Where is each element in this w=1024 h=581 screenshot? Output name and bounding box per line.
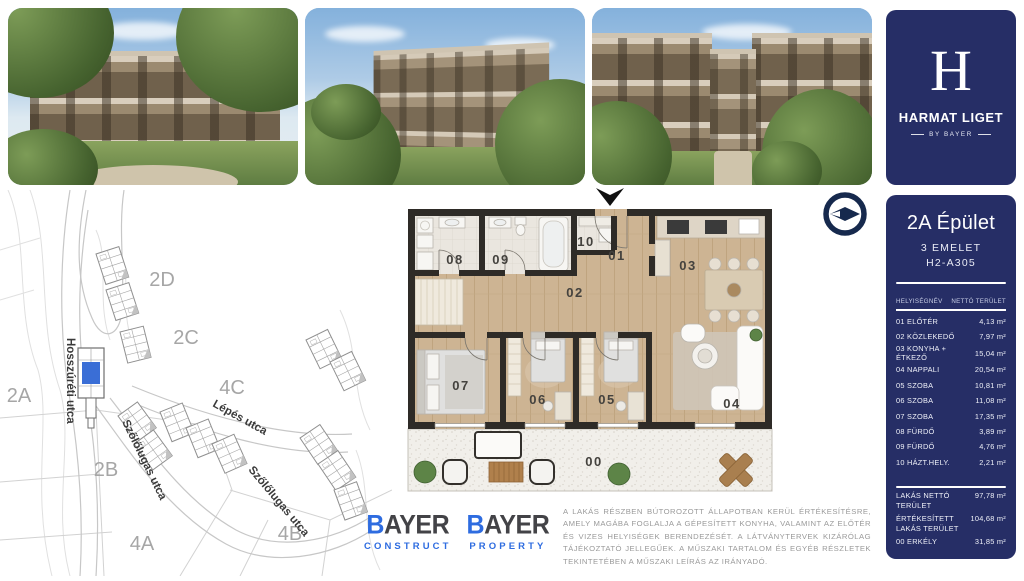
highlighted-building	[78, 348, 104, 428]
bayer-construct-word: BAYER	[364, 512, 452, 539]
byline-text: BY BAYER	[929, 131, 973, 138]
render-photo-corner	[305, 8, 585, 185]
table-row: 08 FÜRDŐ3,89 m²	[895, 424, 1007, 439]
room-name: 05 SZOBA	[896, 381, 933, 390]
logo-initial: B	[366, 510, 384, 540]
unit-building: 2A Épület	[895, 212, 1007, 235]
room-label-00: 00	[585, 454, 602, 469]
col-net-area: NETTÓ TERÜLET	[951, 298, 1006, 305]
bayer-construct-logo: BAYER CONSTRUCT	[364, 513, 452, 552]
summary-row: 00 ERKÉLY31,85 m²	[895, 534, 1007, 551]
col-room-name: HELYISÉGNÉV	[896, 298, 943, 305]
table-row: 04 NAPPALI20,54 m²	[895, 362, 1007, 377]
roads	[62, 190, 372, 576]
summary-area: 31,85 m²	[975, 537, 1006, 546]
brand-byline: BY BAYER	[886, 131, 1016, 138]
walkway	[714, 151, 752, 185]
site-map: 2D 2C 4C 2A 2B 4A 4B Hosszúréti utca Lép…	[0, 190, 392, 576]
unit-floor: 3 EMELET	[895, 242, 1007, 254]
building-facade	[710, 54, 756, 158]
company-logos: BAYER CONSTRUCT BAYER PROPERTY	[364, 513, 549, 552]
cloud	[325, 26, 405, 42]
summary-area: 104,68 m²	[970, 514, 1006, 523]
render-photo-entrance	[592, 8, 872, 185]
floor-plan: 01 02 03 04 05 06 07 08 09 10 00	[405, 182, 819, 496]
room-name: 02 KÖZLEKEDŐ	[896, 332, 954, 341]
block-label-2c: 2C	[173, 327, 199, 349]
brand-card: H HARMAT LIGET BY BAYER	[886, 10, 1016, 185]
logo-initial: B	[467, 510, 485, 540]
dash	[911, 134, 924, 135]
room-area: 11,08 m²	[975, 396, 1006, 405]
selected-unit-marker[interactable]	[82, 362, 100, 384]
bayer-construct-sub: CONSTRUCT	[364, 541, 452, 552]
divider	[896, 309, 1006, 311]
summary-name: LAKÁS NETTÓ TERÜLET	[896, 491, 968, 511]
logo-rest: AYER	[384, 510, 449, 540]
block-label-2a: 2A	[7, 385, 32, 407]
bayer-property-sub: PROPERTY	[467, 541, 550, 552]
block-label-2d: 2D	[149, 269, 175, 291]
room-area: 17,35 m²	[975, 412, 1006, 421]
block-label-2b: 2B	[94, 459, 118, 481]
bayer-property-word: BAYER	[467, 512, 550, 539]
room-label-05: 05	[598, 392, 615, 407]
room-label-08: 08	[446, 252, 463, 267]
room-area: 2,21 m²	[979, 458, 1006, 467]
table-row: 07 SZOBA17,35 m²	[895, 408, 1007, 423]
room-label-01: 01	[608, 248, 625, 263]
block-label-4a: 4A	[130, 533, 155, 555]
room-area: 10,81 m²	[975, 381, 1006, 390]
room-name: 03 KONYHA + ÉTKEZŐ	[896, 344, 975, 362]
room-label-09: 09	[492, 252, 509, 267]
table-row: 10 HÁZT.HELY.2,21 m²	[895, 455, 1007, 470]
render-photo-courtyard	[8, 8, 298, 185]
room-label-03: 03	[679, 258, 696, 273]
room-name: 06 SZOBA	[896, 396, 933, 405]
room-name: 09 FÜRDŐ	[896, 442, 935, 451]
room-name: 04 NAPPALI	[896, 365, 939, 374]
table-row: 05 SZOBA10,81 m²	[895, 378, 1007, 393]
street-lepes: Lépés utca	[211, 398, 270, 438]
table-row: 06 SZOBA11,08 m²	[895, 393, 1007, 408]
room-name: 10 HÁZT.HELY.	[896, 458, 950, 467]
summary-name: ÉRTÉKESÍTETT LAKÁS TERÜLET	[896, 514, 968, 534]
table-row: 09 FÜRDŐ4,76 m²	[895, 439, 1007, 454]
logo-rest: AYER	[484, 510, 549, 540]
room-name: 07 SZOBA	[896, 412, 933, 421]
table-header: HELYISÉGNÉV NETTÓ TERÜLET	[895, 298, 1007, 305]
room-label-04: 04	[723, 396, 740, 411]
street-hosszureti: Hosszúréti utca	[64, 338, 76, 424]
brand-name: HARMAT LIGET	[886, 110, 1016, 125]
disclaimer-text: A LAKÁS RÉSZBEN BÚTOROZOTT ÁLLAPOTBAN KE…	[563, 506, 871, 568]
summary-row: ÉRTÉKESÍTETT LAKÁS TERÜLET104,68 m²	[895, 511, 1007, 534]
room-label-06: 06	[529, 392, 546, 407]
unit-code: H2-A305	[895, 257, 1007, 269]
room-area: 7,97 m²	[979, 332, 1006, 341]
block-label-4c: 4C	[219, 377, 245, 399]
summary-row: LAKÁS NETTÓ TERÜLET97,78 m²	[895, 488, 1007, 511]
summary-name: 00 ERKÉLY	[896, 537, 968, 547]
divider	[896, 282, 1006, 284]
table-row: 03 KONYHA + ÉTKEZŐ15,04 m²	[895, 344, 1007, 362]
table-row: 02 KÖZLEKEDŐ7,97 m²	[895, 329, 1007, 344]
dash	[978, 134, 991, 135]
unit-info-card: 2A Épület 3 EMELET H2-A305 HELYISÉGNÉV N…	[886, 195, 1016, 559]
brand-logo: H	[886, 42, 1016, 100]
compass-icon	[821, 190, 869, 238]
room-area: 4,13 m²	[979, 317, 1006, 326]
room-label-07: 07	[452, 378, 469, 393]
room-area: 4,76 m²	[979, 442, 1006, 451]
room-area: 3,89 m²	[979, 427, 1006, 436]
room-label-10: 10	[577, 234, 594, 249]
room-name: 01 ELŐTÉR	[896, 317, 938, 326]
room-area: 20,54 m²	[975, 365, 1006, 374]
room-name: 08 FÜRDŐ	[896, 427, 935, 436]
room-label-02: 02	[566, 285, 583, 300]
bayer-property-logo: BAYER PROPERTY	[467, 513, 550, 552]
bush	[311, 84, 381, 140]
table-row: 01 ELŐTÉR4,13 m²	[895, 314, 1007, 329]
room-area: 15,04 m²	[975, 349, 1006, 358]
entry-arrow-icon	[596, 188, 624, 206]
summary-area: 97,78 m²	[975, 491, 1006, 500]
